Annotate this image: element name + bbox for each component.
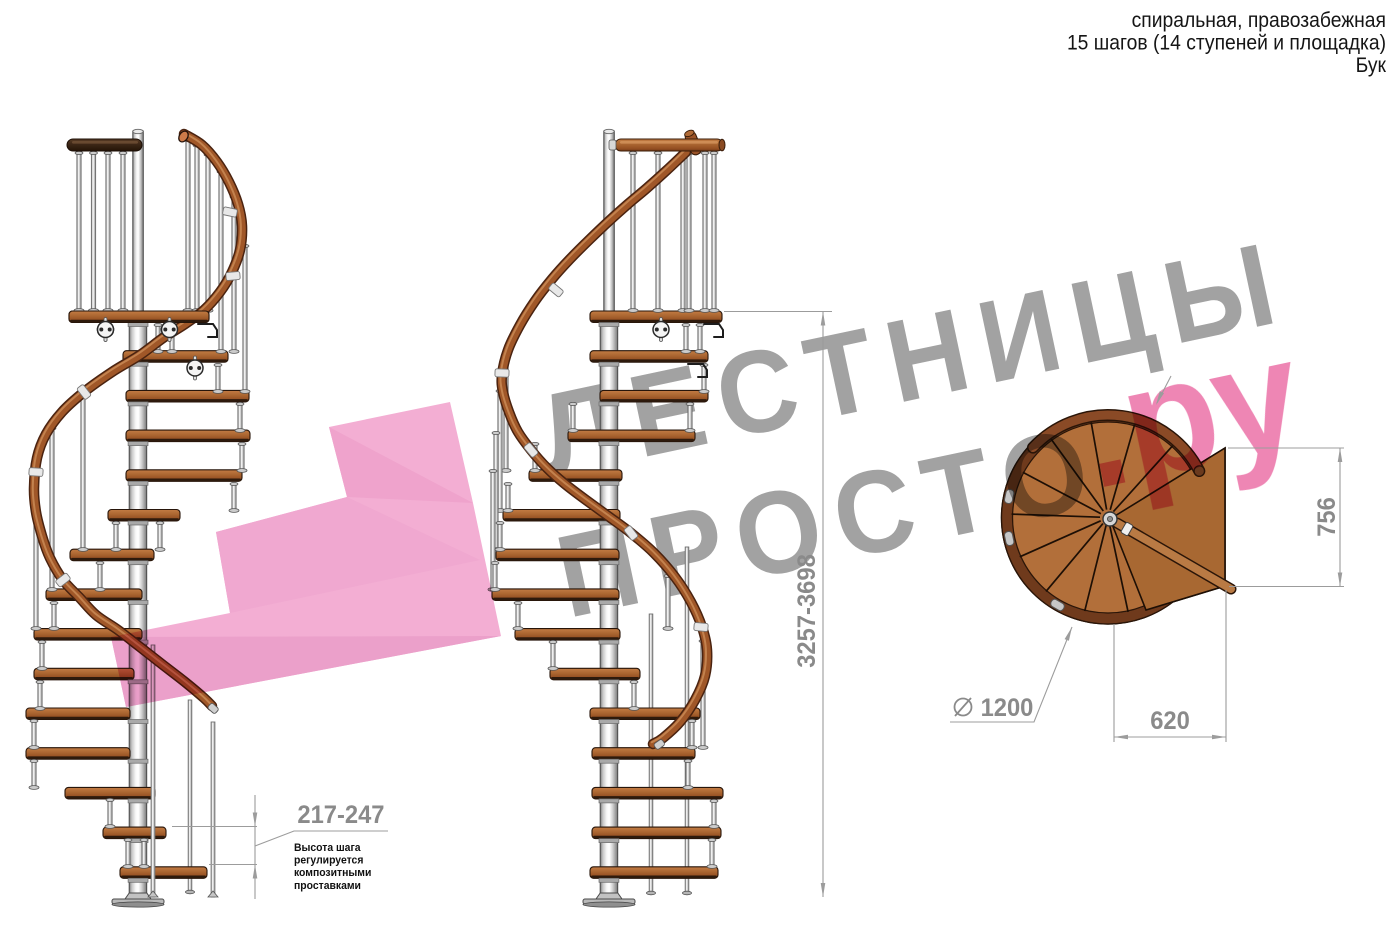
svg-text:3257-3698: 3257-3698 — [793, 554, 821, 668]
svg-text:проставками: проставками — [294, 879, 361, 891]
svg-text:спиральная, правозабежная: спиральная, правозабежная — [1132, 9, 1386, 32]
svg-text:217-247: 217-247 — [297, 801, 384, 829]
svg-text:1200: 1200 — [981, 694, 1034, 722]
svg-text:Высота шага: Высота шага — [294, 842, 362, 854]
svg-text:Бук: Бук — [1356, 54, 1387, 77]
svg-text:756: 756 — [1313, 497, 1341, 537]
svg-text:композитными: композитными — [294, 867, 371, 879]
svg-text:регулируется: регулируется — [294, 854, 363, 866]
svg-text:15 шагов (14 ступеней и площад: 15 шагов (14 ступеней и площадка) — [1067, 32, 1386, 55]
svg-text:620: 620 — [1150, 707, 1190, 735]
